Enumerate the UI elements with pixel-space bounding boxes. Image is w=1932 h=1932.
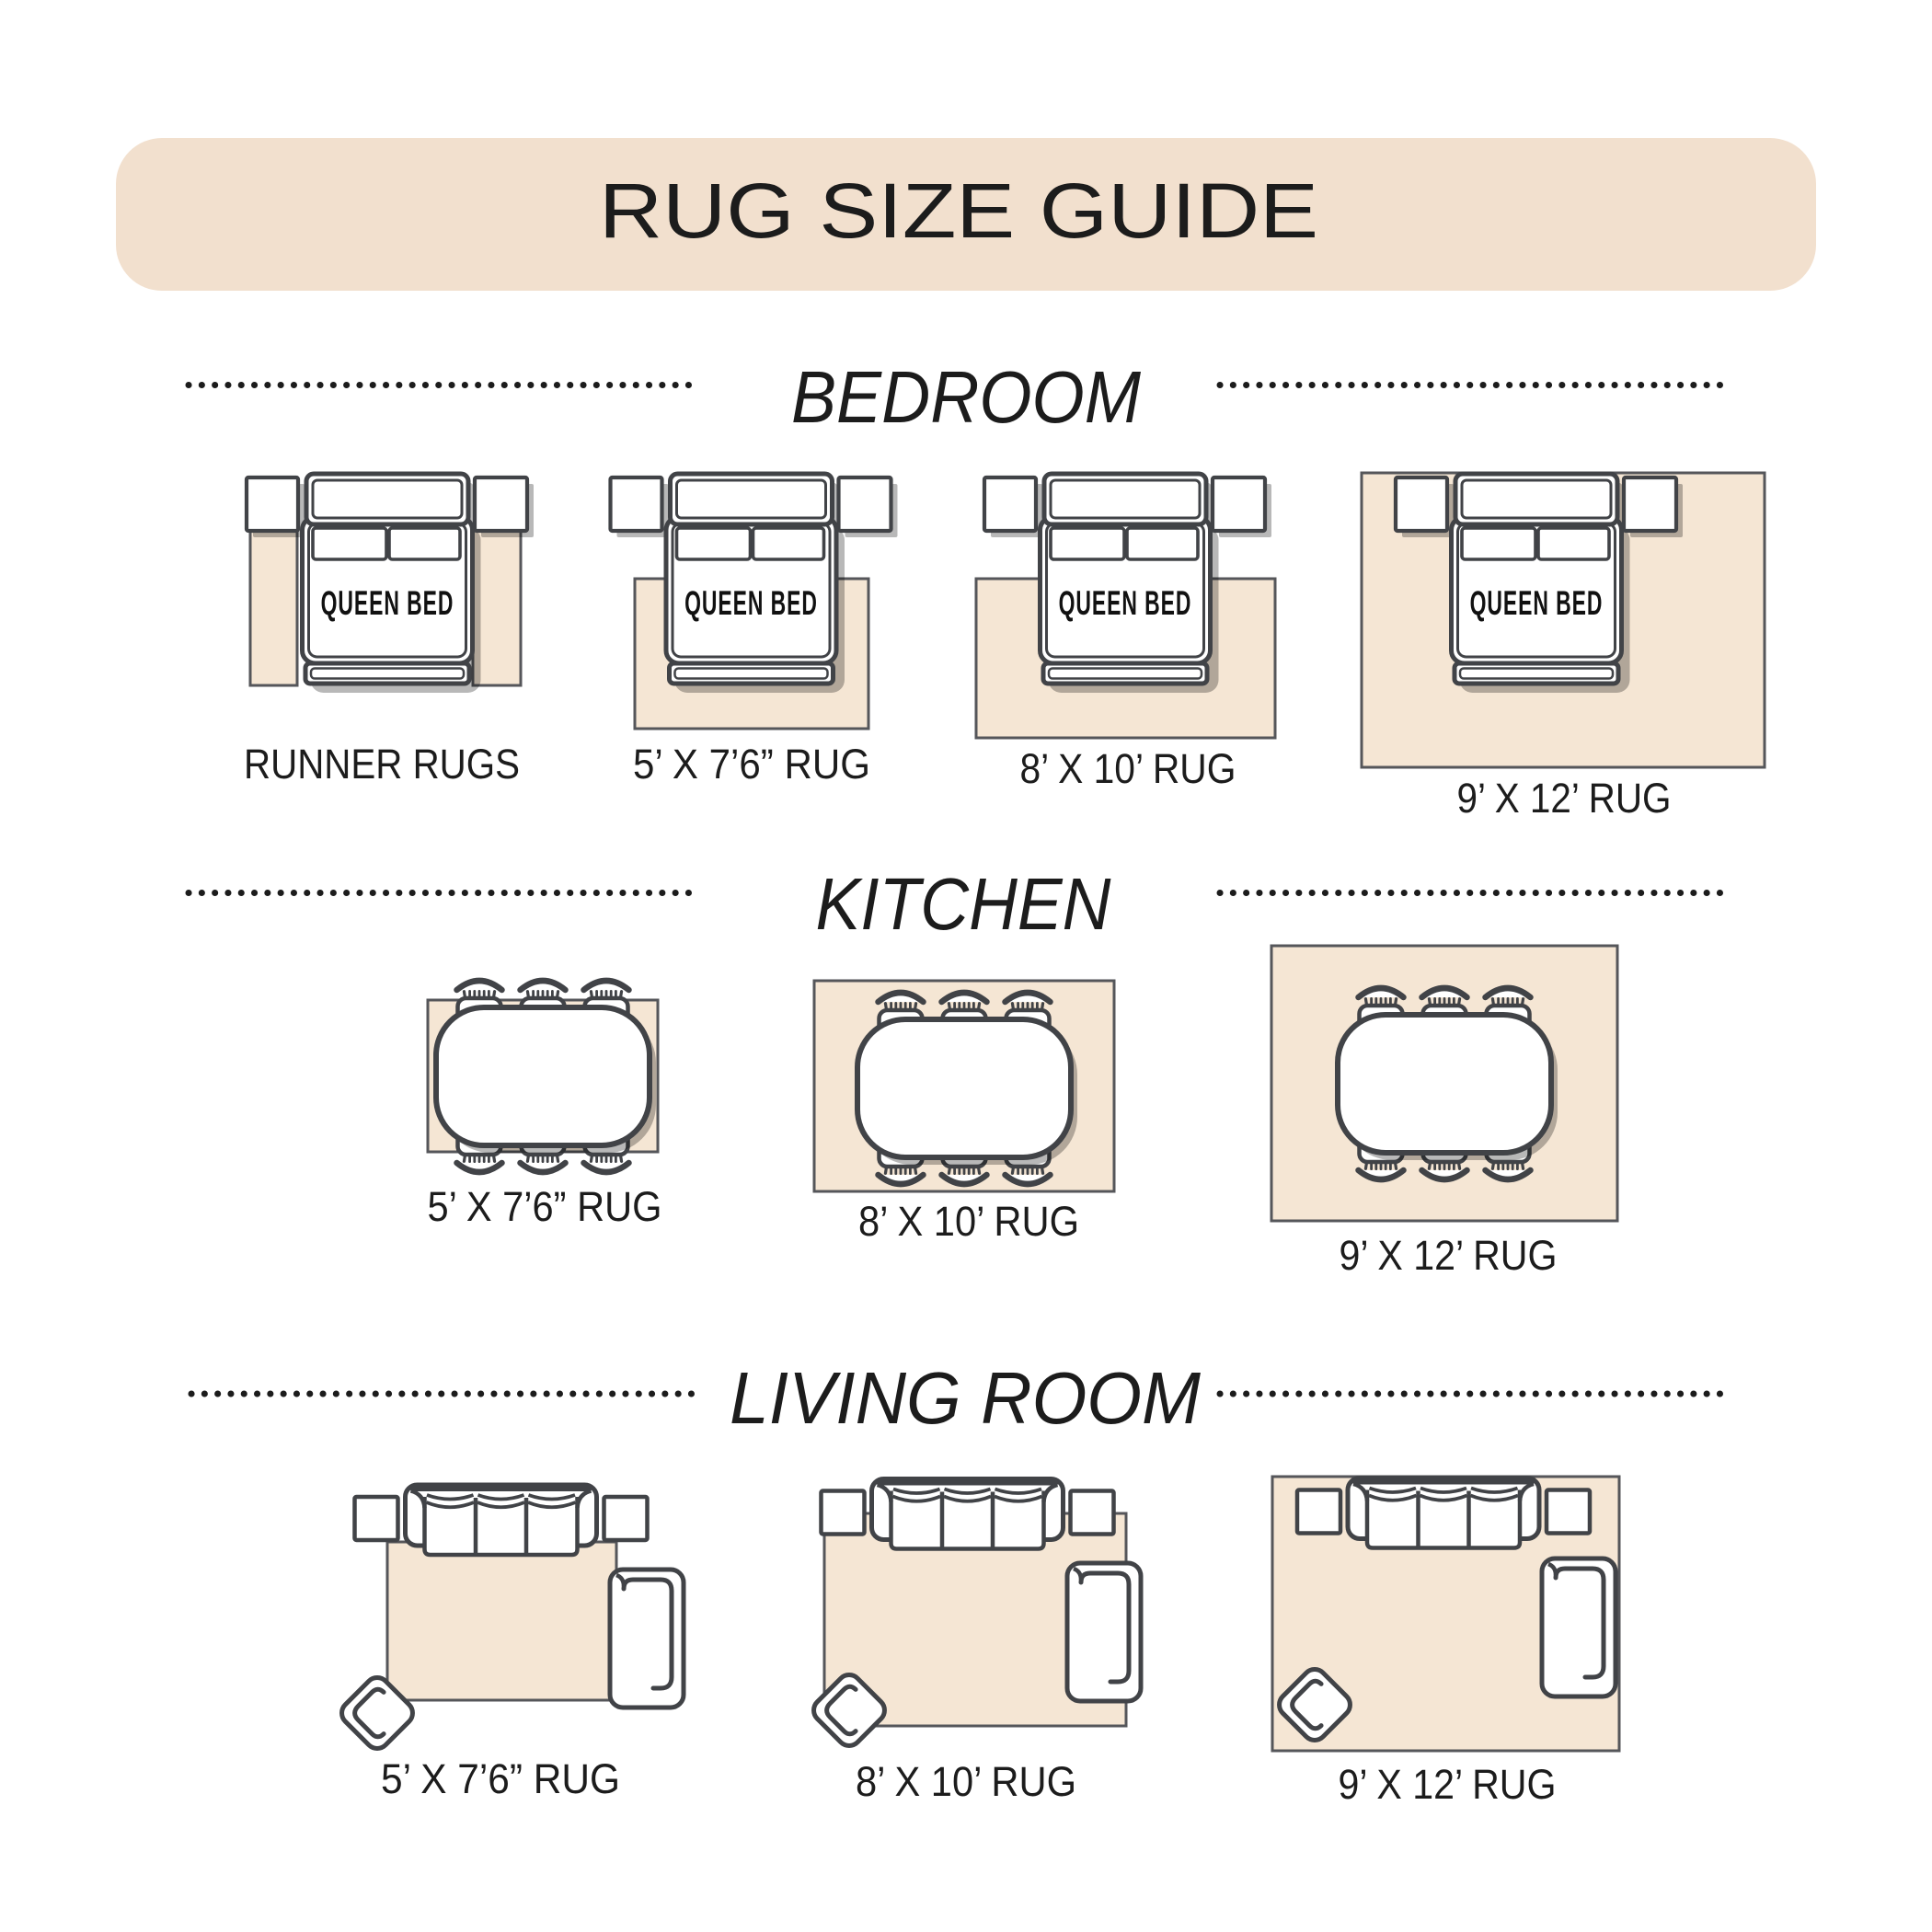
svg-text:RUG SIZE GUIDE: RUG SIZE GUIDE: [599, 167, 1318, 254]
svg-text:8’ X 10’ RUG: 8’ X 10’ RUG: [1020, 745, 1236, 792]
svg-text:KITCHEN: KITCHEN: [816, 863, 1111, 945]
svg-text:5’ X 7’6” RUG: 5’ X 7’6” RUG: [633, 741, 870, 788]
svg-text:BEDROOM: BEDROOM: [791, 356, 1141, 438]
svg-text:RUNNER RUGS: RUNNER RUGS: [244, 741, 520, 788]
svg-text:5’ X 7’6” RUG: 5’ X 7’6” RUG: [428, 1183, 662, 1230]
svg-text:9’ X 12’ RUG: 9’ X 12’ RUG: [1457, 775, 1672, 822]
svg-text:8’ X 10’ RUG: 8’ X 10’ RUG: [858, 1198, 1079, 1245]
svg-text:9’ X 12’ RUG: 9’ X 12’ RUG: [1339, 1761, 1557, 1808]
svg-text:9’ X 12’ RUG: 9’ X 12’ RUG: [1340, 1232, 1558, 1279]
svg-text:LIVING ROOM: LIVING ROOM: [730, 1357, 1201, 1439]
svg-text:5’ X 7’6” RUG: 5’ X 7’6” RUG: [381, 1755, 620, 1802]
svg-text:8’ X 10’ RUG: 8’ X 10’ RUG: [856, 1758, 1076, 1805]
